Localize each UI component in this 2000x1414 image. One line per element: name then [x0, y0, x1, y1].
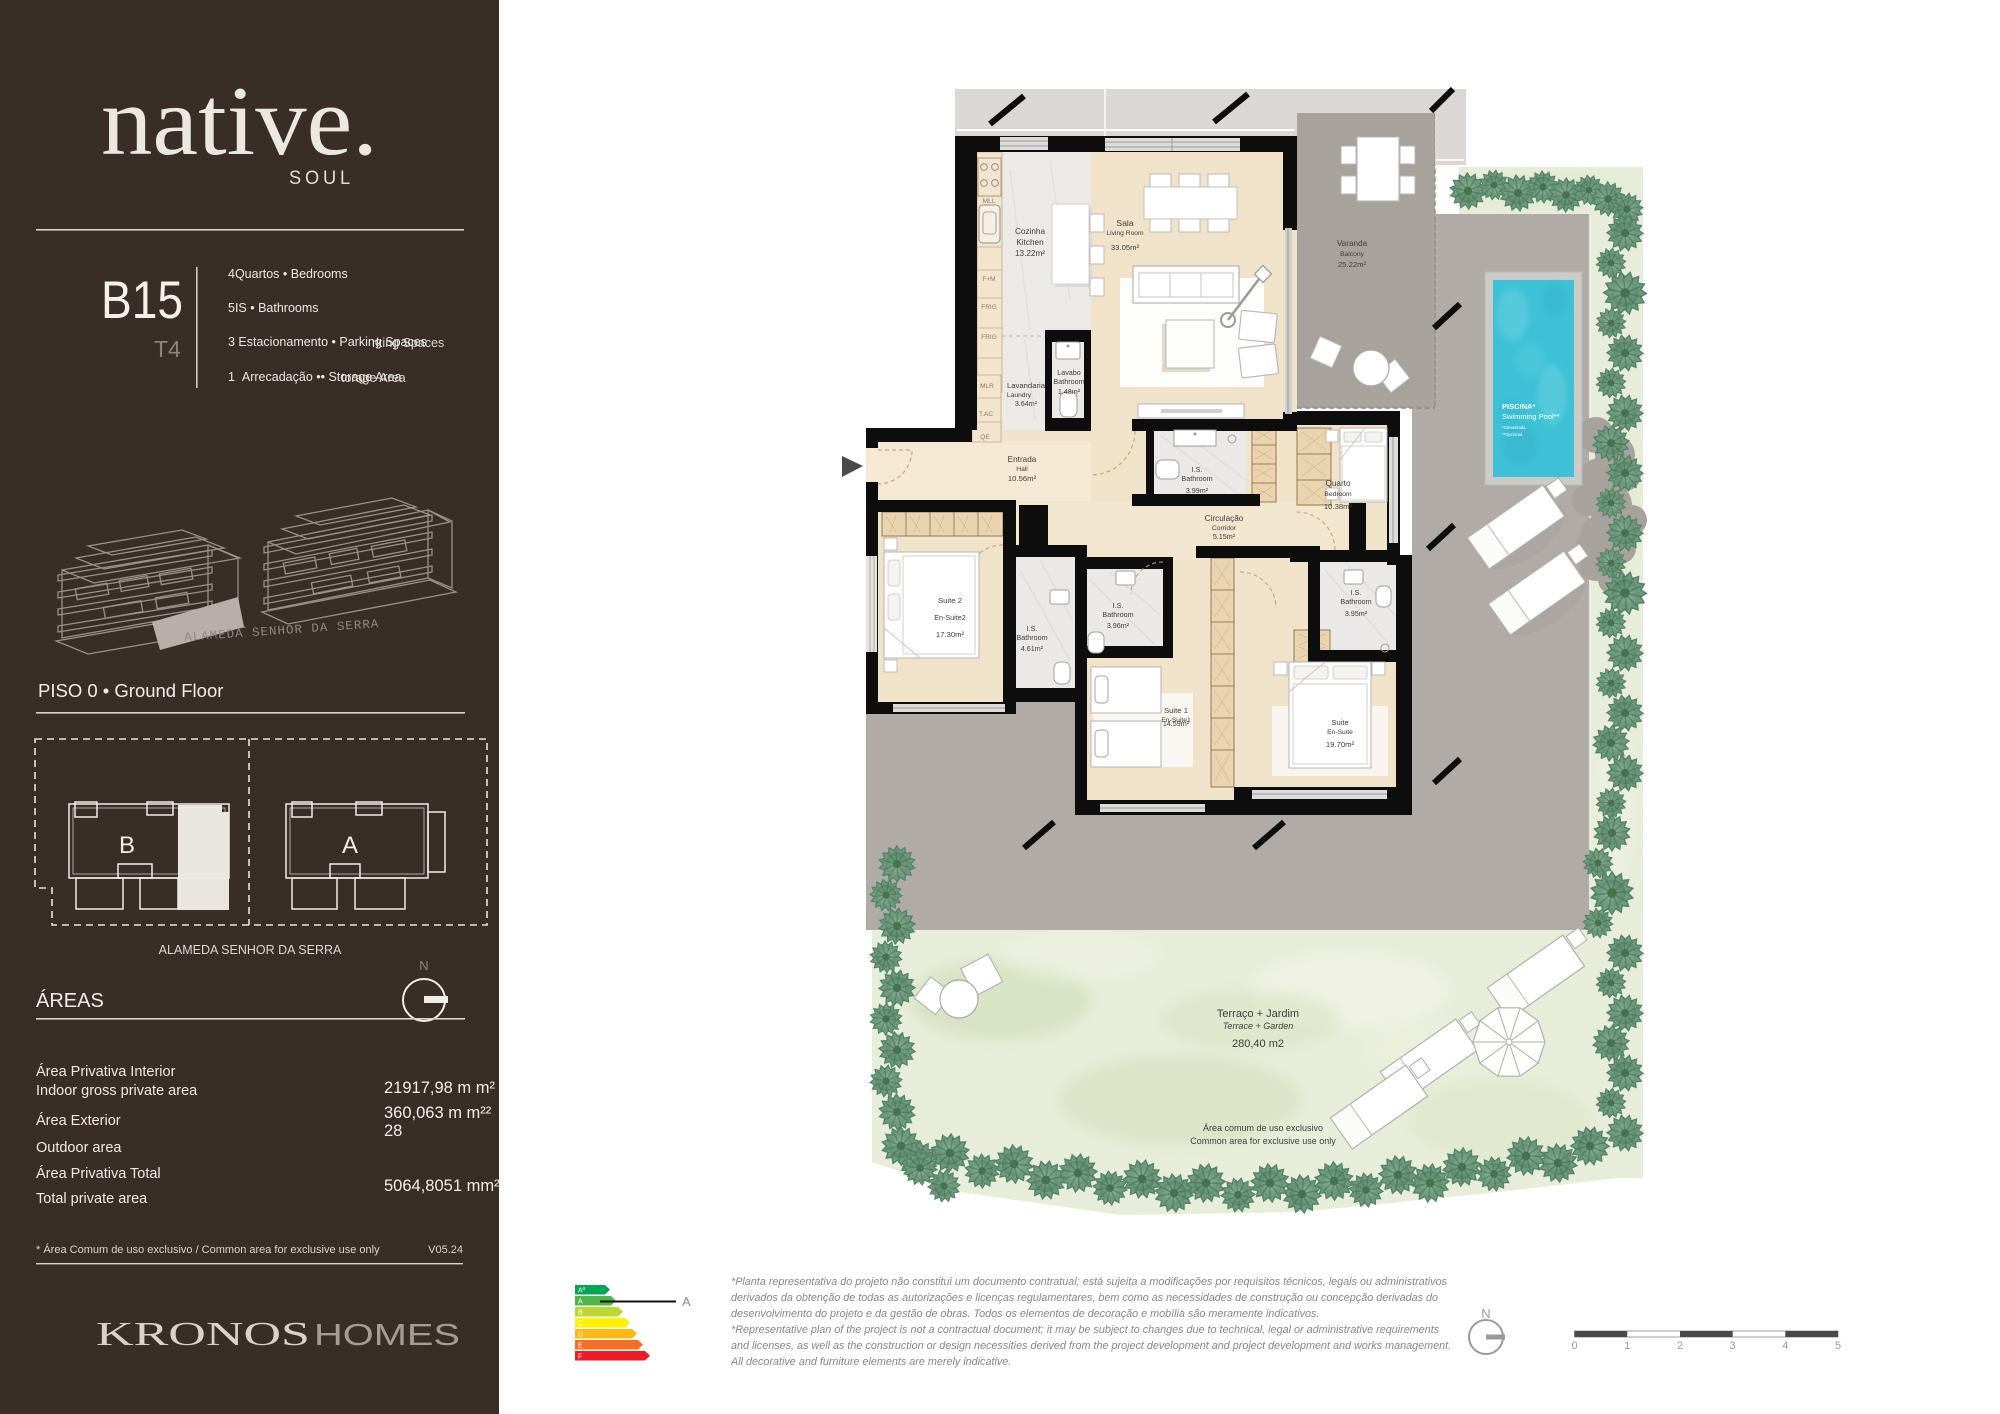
svg-text:**Opcional: **Opcional	[1502, 432, 1522, 437]
svg-text:SOUL: SOUL	[289, 168, 354, 189]
svg-text:33.05m²: 33.05m²	[1111, 243, 1140, 252]
svg-text:En-Suite: En-Suite	[1327, 729, 1353, 736]
svg-text:10.38m²: 10.38m²	[1324, 502, 1353, 511]
svg-text:Bathroom: Bathroom	[1340, 597, 1371, 606]
svg-text:I.S.: I.S.	[1192, 465, 1203, 474]
svg-text:ÁREAS: ÁREAS	[36, 989, 104, 1012]
svg-text:rking Spaces: rking Spaces	[372, 336, 444, 350]
svg-text:B: B	[578, 1310, 583, 1317]
svg-text:Terraço + Jardim: Terraço + Jardim	[1217, 1008, 1299, 1020]
svg-text:Quarto: Quarto	[1325, 479, 1350, 488]
svg-text:Kitchen: Kitchen	[1016, 238, 1044, 247]
svg-text:*Planta representativa do proj: *Planta representativa do projeto não co…	[731, 1276, 1448, 1288]
svg-text:PISO 0 • Ground Floor: PISO 0 • Ground Floor	[38, 680, 223, 701]
svg-text:13.22m²: 13.22m²	[1015, 249, 1045, 258]
svg-text:MLR: MLR	[980, 383, 994, 390]
svg-text:25.22m²: 25.22m²	[1338, 260, 1367, 269]
svg-text:Total private area: Total private area	[36, 1191, 148, 1207]
svg-text:10.56m²: 10.56m²	[1008, 474, 1037, 483]
svg-text:19.70m²: 19.70m²	[1326, 740, 1355, 749]
svg-text:3: 3	[1730, 1340, 1736, 1352]
svg-text:Corridor: Corridor	[1212, 525, 1237, 532]
svg-text:Lavandaria: Lavandaria	[1007, 381, 1046, 390]
svg-text:3.96m²: 3.96m²	[1107, 621, 1130, 630]
svg-text:*Climatizada: *Climatizada	[1502, 425, 1526, 430]
svg-text:Outdoor area: Outdoor area	[36, 1140, 122, 1156]
svg-text:T4: T4	[154, 336, 181, 362]
svg-text:KRONOS: KRONOS	[96, 1316, 310, 1353]
svg-text:T.AC: T.AC	[979, 411, 993, 418]
svg-text:Área comum de uso exclusivo: Área comum de uso exclusivo	[1203, 1123, 1323, 1133]
svg-text:17.30m²: 17.30m²	[936, 630, 965, 639]
svg-text:5IS • Bathrooms: 5IS • Bathrooms	[228, 301, 319, 315]
svg-text:Bathroom: Bathroom	[1102, 610, 1133, 619]
svg-text:* Área Comum de uso exclusivo: * Área Comum de uso exclusivo / Common a…	[36, 1243, 380, 1256]
svg-text:N: N	[419, 958, 428, 973]
svg-text:E: E	[578, 1343, 583, 1350]
svg-text:Área Exterior: Área Exterior	[36, 1112, 121, 1129]
svg-text:and licenses, as well as the c: and licenses, as well as the constructio…	[731, 1340, 1451, 1352]
svg-text:5064,8051 mm²: 5064,8051 mm²	[384, 1177, 500, 1195]
svg-text:2: 2	[1677, 1340, 1683, 1352]
svg-text:4.61m²: 4.61m²	[1021, 644, 1044, 653]
svg-text:Área Privativa Interior: Área Privativa Interior	[36, 1063, 176, 1080]
svg-text:D: D	[578, 1332, 583, 1339]
svg-text:C: C	[578, 1321, 583, 1328]
svg-text:ALAMEDA SENHOR DA SERRA: ALAMEDA SENHOR DA SERRA	[159, 943, 342, 957]
svg-text:V05.24: V05.24	[428, 1244, 463, 1256]
svg-text:torage Area: torage Area	[341, 371, 406, 385]
svg-text:360,063 m m²²: 360,063 m m²²	[384, 1104, 492, 1122]
svg-text:3.64m²: 3.64m²	[1015, 399, 1038, 408]
svg-text:Entrada: Entrada	[1008, 455, 1037, 464]
svg-text:QE: QE	[980, 434, 990, 441]
svg-text:PISCINA*: PISCINA*	[1502, 402, 1535, 411]
svg-text:I.S.: I.S.	[1351, 588, 1362, 597]
svg-text:A: A	[578, 1299, 583, 1306]
svg-text:*Representative plan of the pr: *Representative plan of the project is n…	[731, 1324, 1440, 1336]
svg-text:I.S.: I.S.	[1027, 624, 1038, 633]
svg-text:Balcony: Balcony	[1340, 251, 1364, 258]
svg-text:3.99m²: 3.99m²	[1186, 486, 1209, 495]
svg-text:Bathroom: Bathroom	[1181, 474, 1212, 483]
svg-text:Sala: Sala	[1116, 218, 1134, 228]
svg-text:HOMES: HOMES	[314, 1317, 460, 1352]
svg-text:desenvolvimento do projeto e d: desenvolvimento do projeto e da gestão d…	[731, 1308, 1319, 1320]
svg-text:0: 0	[1571, 1340, 1577, 1352]
svg-text:21917,98 m m²: 21917,98 m m²	[384, 1079, 495, 1097]
svg-text:A: A	[682, 1294, 691, 1309]
svg-text:MLL: MLL	[983, 198, 996, 205]
svg-text:FRIG: FRIG	[981, 304, 997, 311]
svg-text:Indoor gross private area: Indoor gross private area	[36, 1083, 198, 1099]
svg-text:B15: B15	[101, 271, 183, 330]
svg-text:En-Suite2: En-Suite2	[934, 613, 966, 622]
svg-text:Bedroom: Bedroom	[1324, 491, 1352, 498]
svg-text:F: F	[578, 1354, 582, 1361]
svg-text:4Quartos • Bedrooms: 4Quartos • Bedrooms	[228, 267, 348, 281]
svg-text:Circulação: Circulação	[1205, 514, 1244, 523]
svg-text:Bathroom: Bathroom	[1016, 633, 1047, 642]
svg-text:derivados da obtenção de todas: derivados da obtenção de todas as autori…	[731, 1292, 1438, 1304]
svg-text:1: 1	[1624, 1340, 1630, 1352]
svg-text:4: 4	[1782, 1340, 1788, 1352]
svg-text:Laundry: Laundry	[1007, 392, 1032, 399]
svg-text:FRIG: FRIG	[981, 334, 997, 341]
svg-text:Swimming Pool**: Swimming Pool**	[1502, 412, 1560, 421]
svg-text:Varanda: Varanda	[1337, 239, 1368, 248]
svg-text:N: N	[1481, 1306, 1490, 1321]
svg-text:3.95m²: 3.95m²	[1345, 609, 1368, 618]
svg-text:Suite 1: Suite 1	[1164, 706, 1188, 715]
svg-text:5: 5	[1835, 1340, 1841, 1352]
svg-text:F+M: F+M	[982, 276, 995, 283]
svg-text:Terrace + Garden: Terrace + Garden	[1223, 1021, 1293, 1031]
svg-text:A: A	[342, 832, 358, 859]
svg-text:I.S.: I.S.	[1113, 601, 1124, 610]
svg-text:native.: native.	[101, 67, 378, 176]
svg-text:14.59m²: 14.59m²	[1163, 719, 1190, 728]
svg-text:Suite: Suite	[1331, 718, 1349, 727]
svg-text:All decorative and furniture e: All decorative and furniture elements ar…	[730, 1356, 1011, 1368]
svg-text:1.48m²: 1.48m²	[1058, 387, 1081, 396]
svg-text:Living Room: Living Room	[1106, 230, 1144, 237]
svg-text:Lavabo: Lavabo	[1057, 368, 1081, 377]
svg-text:Área Privativa Total: Área Privativa Total	[36, 1165, 161, 1182]
svg-text:Suite 2: Suite 2	[938, 596, 962, 605]
svg-text:Hall: Hall	[1016, 466, 1028, 473]
svg-text:5.15m²: 5.15m²	[1213, 532, 1236, 541]
svg-text:Aº: Aº	[578, 1288, 586, 1295]
svg-text:Bathroom: Bathroom	[1053, 377, 1084, 386]
svg-text:28: 28	[384, 1122, 402, 1140]
svg-text:B: B	[119, 832, 135, 859]
svg-text:Common area for exclusive use: Common area for exclusive use only	[1190, 1136, 1336, 1146]
svg-text:280,40 m2: 280,40 m2	[1232, 1038, 1284, 1050]
svg-text:Cozinha: Cozinha	[1015, 227, 1045, 236]
